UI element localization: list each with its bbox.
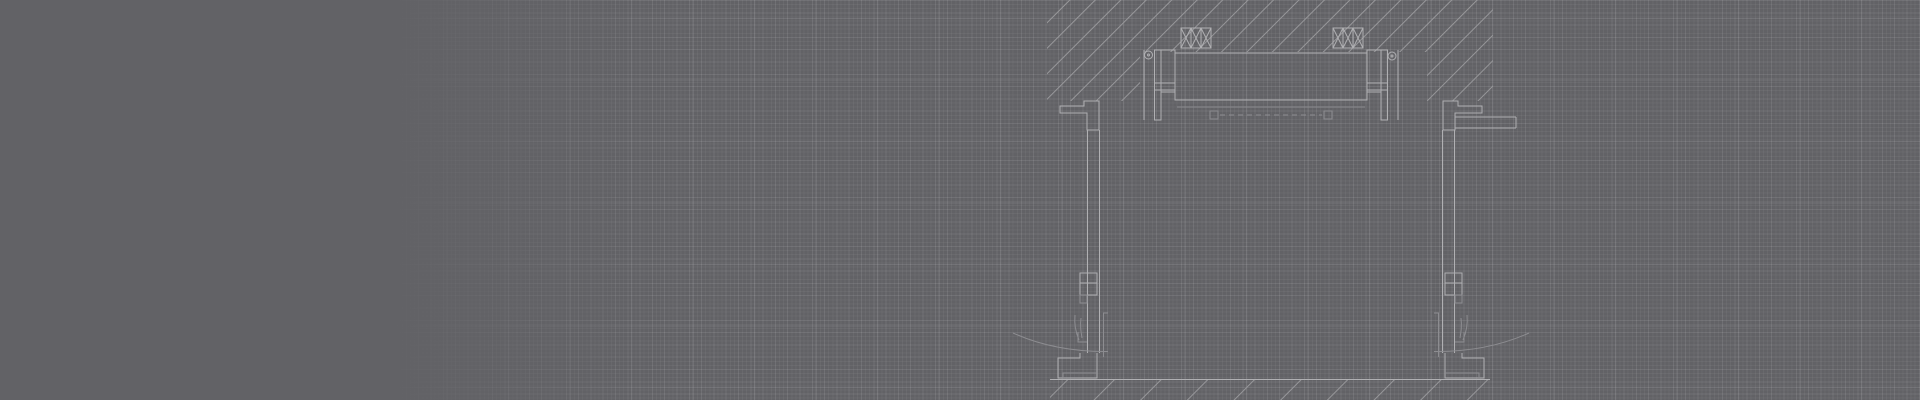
hinge-left-plate-lower bbox=[1080, 283, 1097, 295]
foot-left bbox=[1058, 353, 1097, 378]
latch-left-blade-b bbox=[1081, 318, 1082, 338]
hinge-right-pin bbox=[1455, 295, 1462, 303]
floor-section-hatch bbox=[1050, 380, 1490, 400]
reveal-block-right bbox=[1443, 101, 1482, 130]
door-section-drawing bbox=[0, 0, 1920, 400]
leaf-edge-right bbox=[1434, 313, 1439, 357]
head-screw-left bbox=[1145, 51, 1153, 59]
head-post-right bbox=[1381, 50, 1388, 120]
foot-left-inner bbox=[1063, 373, 1097, 378]
head-seal-cap-right bbox=[1324, 111, 1332, 119]
wall-section-hatch bbox=[1047, 0, 1493, 101]
reveal-block-left bbox=[1060, 101, 1099, 130]
hinge-left-pin bbox=[1080, 295, 1087, 303]
swing-arc-left bbox=[1013, 333, 1108, 352]
hinge-left-plate-upper bbox=[1080, 273, 1097, 283]
foot-right-inner bbox=[1445, 373, 1479, 378]
latch-right-bracket bbox=[1455, 332, 1464, 342]
foot-right bbox=[1445, 353, 1484, 378]
cad-grid-canvas bbox=[0, 0, 1920, 400]
head-screw-left-center bbox=[1148, 54, 1150, 56]
cad-section-svg bbox=[0, 0, 1920, 400]
latch-left-bracket bbox=[1078, 332, 1087, 342]
head-post-left bbox=[1155, 50, 1162, 120]
swing-arc-right bbox=[1434, 333, 1529, 352]
head-screw-right-center bbox=[1391, 55, 1393, 57]
head-seal-cap-left bbox=[1210, 111, 1218, 119]
door-head-lintel bbox=[1175, 53, 1367, 100]
head-screw-right bbox=[1388, 52, 1396, 60]
head-packer-left bbox=[1161, 50, 1175, 92]
hinge-right-plate-lower bbox=[1445, 283, 1462, 295]
hinge-right-plate-upper bbox=[1445, 273, 1462, 283]
latch-right-blade-b bbox=[1460, 318, 1461, 338]
head-packer-right bbox=[1367, 50, 1381, 92]
leaf-edge-left bbox=[1104, 313, 1109, 357]
